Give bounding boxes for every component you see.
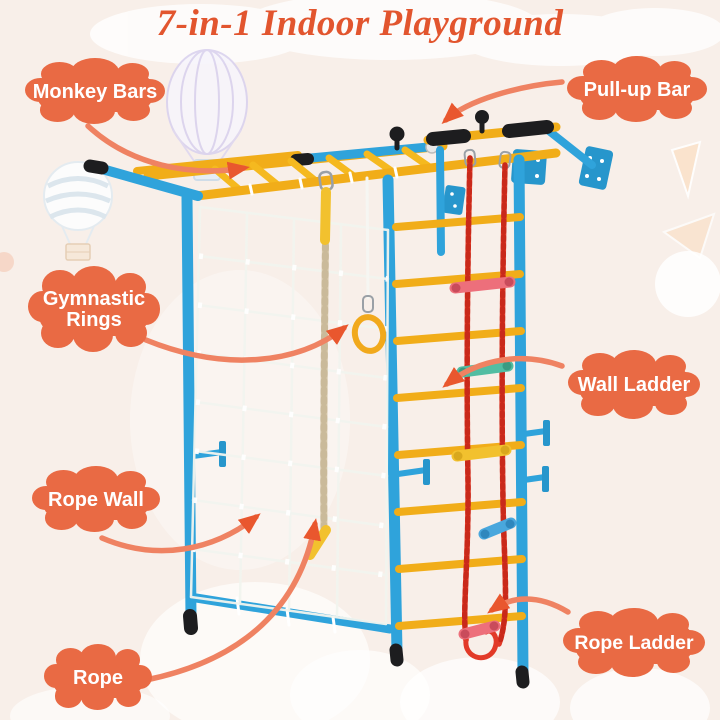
product-infographic: 7-in-1 Indoor Playground Monkey Bars Pul… (0, 0, 720, 720)
callout-label: Pull-up Bar (584, 80, 691, 101)
callout-label: Rope Ladder (574, 633, 693, 653)
callout-label: Wall Ladder (578, 375, 691, 396)
callout-gymnastic-rings: Gymnastic Rings (38, 284, 150, 336)
callout-rope: Rope (52, 658, 144, 698)
page-title: 7-in-1 Indoor Playground (0, 2, 720, 45)
callout-pull-up-bar: Pull-up Bar (578, 70, 696, 110)
callout-label: Gymnastic Rings (38, 289, 150, 331)
callout-rope-wall: Rope Wall (42, 480, 150, 520)
callout-monkey-bars: Monkey Bars (36, 72, 154, 112)
wall-ladder-arrow (447, 359, 562, 384)
callout-wall-ladder: Wall Ladder (578, 364, 690, 406)
callout-label: Rope Wall (48, 490, 144, 511)
callout-label: Monkey Bars (33, 82, 158, 103)
callout-label: Rope (73, 668, 123, 689)
monkey-bars-arrow (88, 126, 244, 171)
callout-rope-ladder: Rope Ladder (574, 622, 694, 664)
pull-up-bar-arrow (446, 82, 562, 120)
gymnastic-rings-arrow (146, 328, 344, 360)
rope-arrow (146, 524, 315, 680)
rope-ladder-arrow (492, 599, 568, 612)
